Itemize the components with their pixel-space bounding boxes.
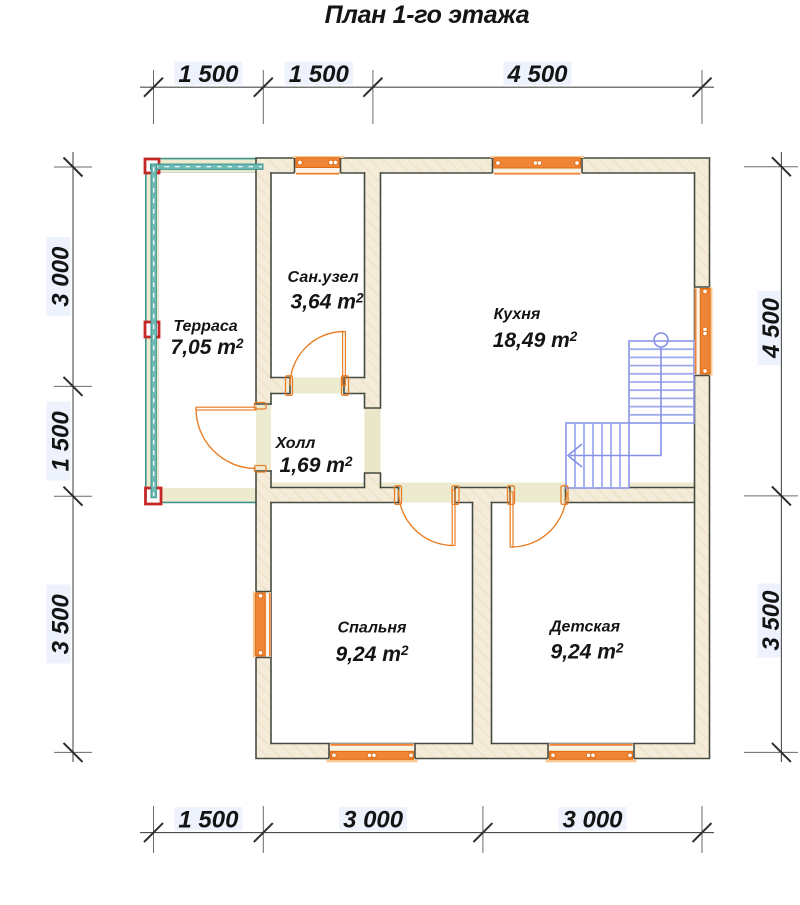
svg-text:Спальня: Спальня — [338, 620, 408, 637]
svg-text:1 500: 1 500 — [48, 411, 75, 472]
svg-text:Холл: Холл — [275, 435, 316, 452]
svg-text:3 000: 3 000 — [562, 807, 623, 834]
svg-text:3 500: 3 500 — [48, 594, 75, 655]
svg-text:1 500: 1 500 — [289, 61, 350, 88]
svg-text:18,49 m2: 18,49 m2 — [493, 329, 578, 352]
svg-text:1 500: 1 500 — [178, 807, 239, 834]
svg-text:4 500: 4 500 — [758, 297, 785, 359]
svg-text:4 500: 4 500 — [506, 61, 568, 88]
svg-text:9,24 m2: 9,24 m2 — [551, 641, 624, 664]
svg-text:1 500: 1 500 — [178, 61, 239, 88]
svg-text:7,05 m2: 7,05 m2 — [171, 336, 244, 359]
svg-text:Терраса: Терраса — [173, 318, 237, 335]
svg-text:3,64 m2: 3,64 m2 — [291, 291, 364, 314]
svg-text:3 000: 3 000 — [343, 807, 404, 834]
svg-text:Сан.узел: Сан.узел — [287, 269, 358, 286]
svg-text:План 1-го этажа: План 1-го этажа — [325, 1, 530, 29]
svg-text:Детская: Детская — [548, 619, 621, 636]
svg-text:9,24 m2: 9,24 m2 — [336, 643, 409, 666]
svg-text:1,69 m2: 1,69 m2 — [280, 454, 353, 477]
svg-text:Кухня: Кухня — [494, 306, 541, 323]
svg-text:3 000: 3 000 — [48, 246, 75, 307]
svg-text:3 500: 3 500 — [758, 590, 785, 651]
